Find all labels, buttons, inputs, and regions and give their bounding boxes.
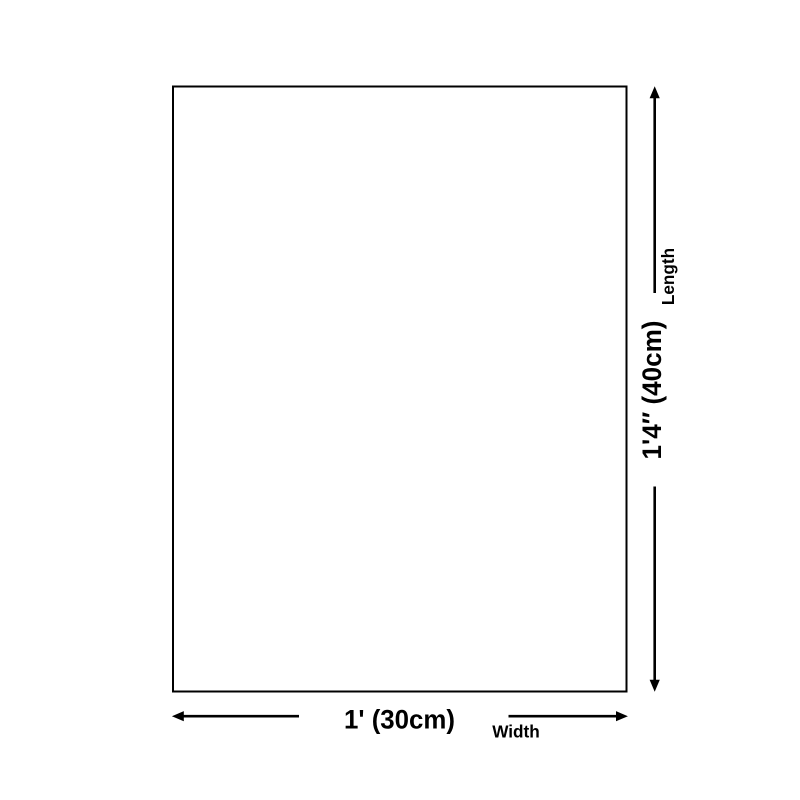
svg-text:Length: Length: [658, 248, 678, 305]
svg-text:1' (30cm): 1' (30cm): [344, 705, 455, 735]
svg-text:1'4″ (40cm): 1'4″ (40cm): [637, 321, 667, 460]
svg-text:Width: Width: [492, 722, 540, 742]
